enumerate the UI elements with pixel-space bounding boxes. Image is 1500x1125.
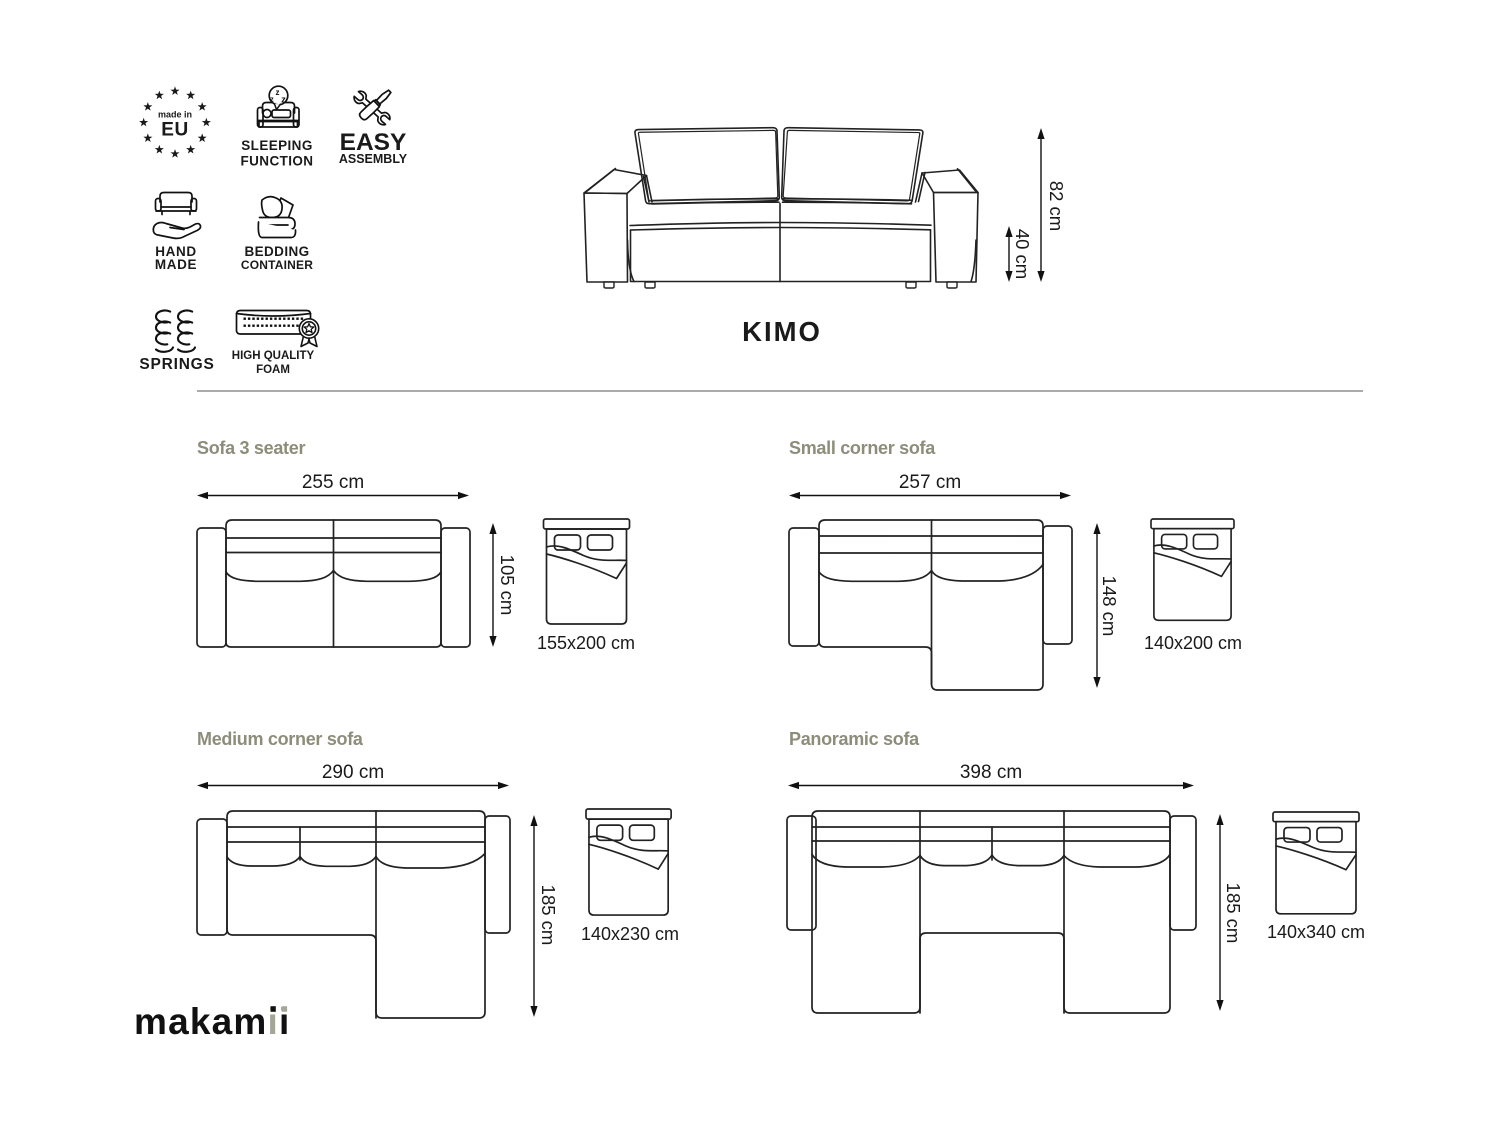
svg-text:BEDDING: BEDDING	[244, 244, 309, 259]
svg-text:140x200 cm: 140x200 cm	[1144, 633, 1242, 653]
svg-text:EU: EU	[161, 119, 188, 140]
svg-text:ASSEMBLY: ASSEMBLY	[339, 152, 408, 166]
svg-text:MADE: MADE	[155, 257, 197, 272]
svg-text:HIGH QUALITY: HIGH QUALITY	[232, 350, 315, 362]
svg-text:155x200 cm: 155x200 cm	[537, 633, 635, 653]
svg-text:Sofa 3 seater: Sofa 3 seater	[197, 438, 305, 458]
svg-text:KIMO: KIMO	[742, 316, 822, 347]
svg-text:z: z	[281, 95, 286, 106]
svg-text:Medium corner sofa: Medium corner sofa	[197, 729, 364, 749]
svg-text:FOAM: FOAM	[256, 364, 290, 376]
svg-text:105 cm: 105 cm	[497, 555, 518, 616]
svg-text:made in: made in	[158, 109, 192, 119]
svg-text:z: z	[270, 97, 274, 104]
svg-text:255 cm: 255 cm	[302, 472, 364, 493]
svg-text:290 cm: 290 cm	[322, 762, 384, 783]
svg-text:82 cm: 82 cm	[1046, 181, 1067, 231]
svg-text:FUNCTION: FUNCTION	[241, 154, 314, 169]
svg-text:148 cm: 148 cm	[1099, 576, 1120, 637]
svg-text:SPRINGS: SPRINGS	[139, 356, 214, 373]
svg-text:SLEEPING: SLEEPING	[241, 138, 312, 153]
svg-text:398 cm: 398 cm	[960, 762, 1022, 783]
svg-text:Small corner sofa: Small corner sofa	[789, 438, 936, 458]
svg-text:makamii: makamii	[134, 1001, 291, 1042]
svg-text:z: z	[276, 88, 280, 97]
svg-text:CONTAINER: CONTAINER	[241, 258, 313, 272]
svg-text:140x230 cm: 140x230 cm	[581, 924, 679, 944]
svg-text:185 cm: 185 cm	[538, 885, 559, 946]
svg-text:40 cm: 40 cm	[1012, 229, 1033, 279]
svg-text:257 cm: 257 cm	[899, 472, 961, 493]
svg-text:140x340 cm: 140x340 cm	[1267, 922, 1365, 942]
svg-text:185 cm: 185 cm	[1223, 883, 1244, 944]
svg-text:Panoramic sofa: Panoramic sofa	[789, 729, 920, 749]
